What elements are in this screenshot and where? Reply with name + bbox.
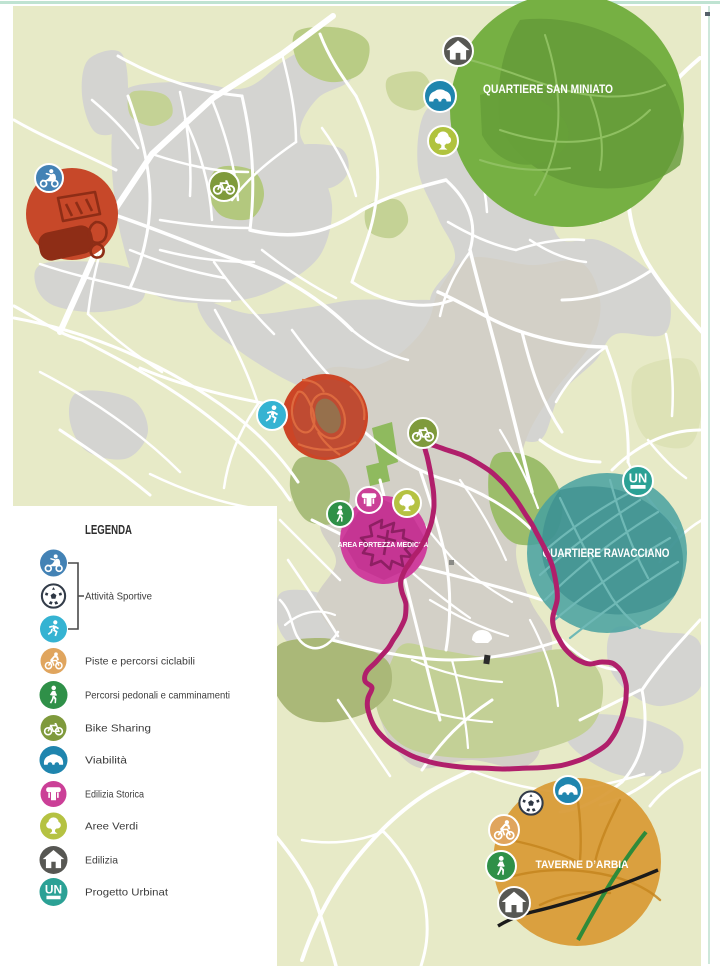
svg-text:QUARTIERE RAVACCIANO: QUARTIERE RAVACCIANO xyxy=(543,548,670,560)
svg-text:Aree Verdi: Aree Verdi xyxy=(85,821,138,833)
svg-text:Percorsi pedonali e camminamen: Percorsi pedonali e camminamenti xyxy=(85,690,230,702)
svg-text:Edilizia Storica: Edilizia Storica xyxy=(85,789,144,801)
svg-text:TAVERNE D’ARBIA: TAVERNE D’ARBIA xyxy=(536,859,629,871)
svg-text:Piste e percorsi ciclabili: Piste e percorsi ciclabili xyxy=(85,656,195,668)
svg-text:Attività Sportive: Attività Sportive xyxy=(85,591,152,603)
svg-text:LEGENDA: LEGENDA xyxy=(85,523,132,537)
svg-text:AREA FORTEZZA MEDICEA: AREA FORTEZZA MEDICEA xyxy=(338,542,429,549)
svg-text:Viabilità: Viabilità xyxy=(85,755,127,767)
svg-text:Edilizia: Edilizia xyxy=(85,855,118,867)
svg-text:Progetto Urbinat: Progetto Urbinat xyxy=(85,887,168,899)
svg-text:QUARTIERE SAN MINIATO: QUARTIERE SAN MINIATO xyxy=(483,84,613,96)
svg-text:Bike Sharing: Bike Sharing xyxy=(85,723,151,735)
